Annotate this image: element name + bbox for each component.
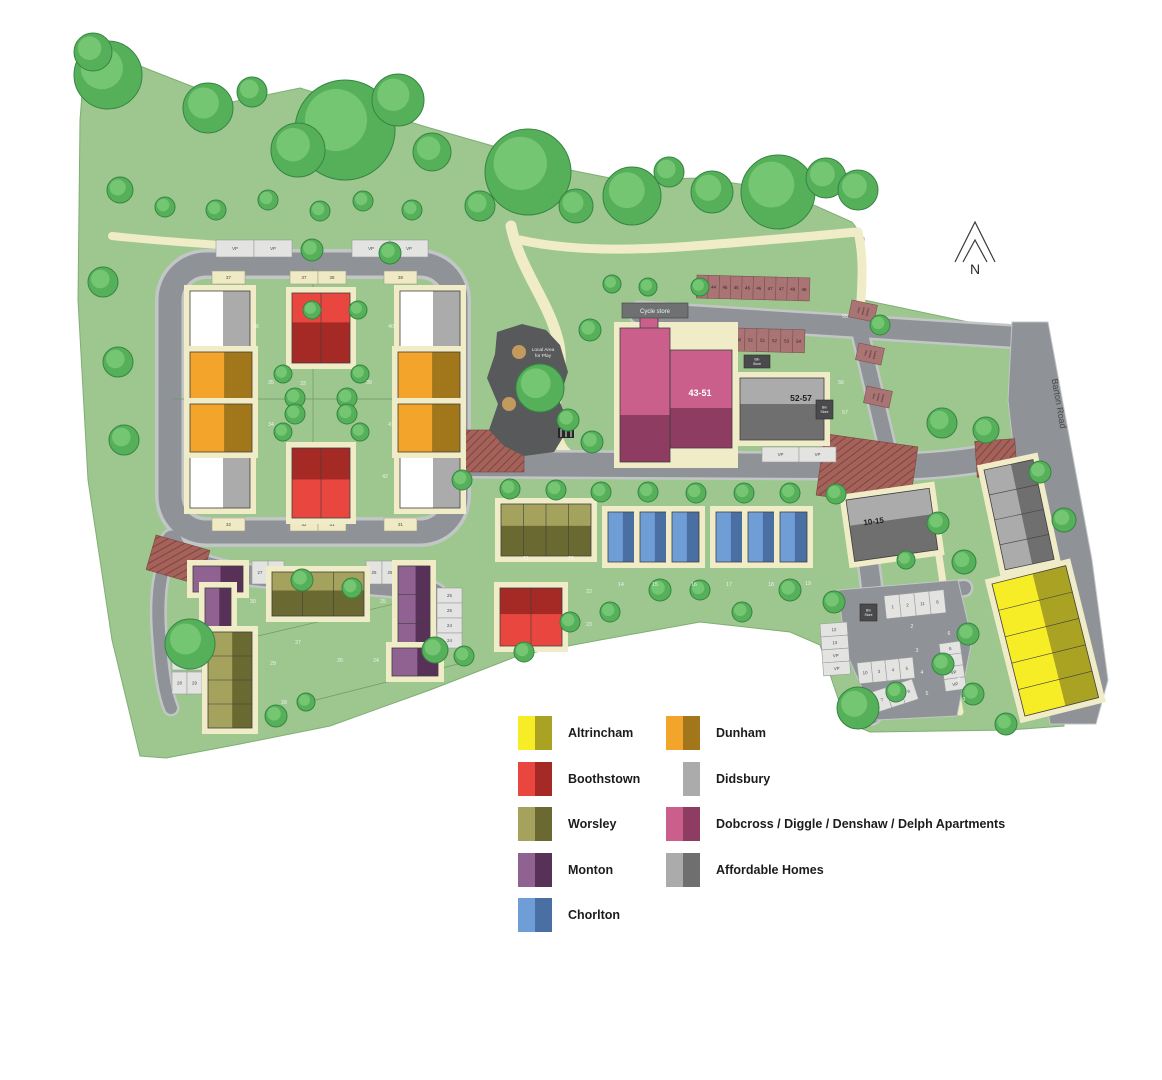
- tree-icon: [258, 190, 278, 210]
- tree-icon: [741, 155, 815, 229]
- tree-icon: [301, 239, 323, 261]
- tree-icon: [691, 171, 733, 213]
- bin-store-label: Bin: [755, 358, 760, 362]
- parking-bay-number: 47: [779, 286, 785, 291]
- tree-icon: [402, 200, 422, 220]
- tree-icon: [514, 642, 534, 662]
- legend-label: Didsbury: [716, 772, 770, 786]
- tree-icon: [559, 189, 593, 223]
- tree-icon: [206, 200, 226, 220]
- tree-icon: [591, 482, 611, 502]
- tree-icon: [886, 682, 906, 702]
- parking-bay-group: 32: [212, 518, 245, 531]
- tree-icon: [88, 267, 118, 297]
- plot-number: 25: [380, 599, 386, 605]
- legend-label: Boothstown: [568, 772, 640, 786]
- parking-bay-number: 25: [447, 593, 452, 598]
- tree-icon: [927, 512, 949, 534]
- parking-bay-number: 46: [745, 285, 751, 290]
- north-label: N: [970, 261, 980, 277]
- legend-item-boothstown: Boothstown: [518, 762, 640, 796]
- building-worsley: [495, 498, 597, 562]
- parking-bay-number: VP: [406, 246, 412, 251]
- north-arrow-inner-chevron: [963, 240, 987, 262]
- tree-icon: [546, 480, 566, 500]
- tree-icon: [351, 423, 369, 441]
- tree-icon: [107, 177, 133, 203]
- parking-bay-number: 24: [447, 638, 452, 643]
- tree-icon: [297, 693, 315, 711]
- parking-bay-number: 45: [734, 285, 740, 290]
- tree-icon: [870, 315, 890, 335]
- tree-icon: [600, 602, 620, 622]
- legend-swatch-dunham: [666, 716, 700, 750]
- tree-icon: [454, 646, 474, 666]
- parking-bay-number: 37: [226, 275, 231, 280]
- building-boothstown: [286, 442, 356, 524]
- plot-number: 55: [842, 314, 848, 320]
- bin-store-label: Store: [820, 410, 828, 414]
- tree-icon: [237, 77, 267, 107]
- plot-number: 26: [337, 658, 343, 664]
- north-arrow: N: [955, 222, 995, 277]
- parking-bay-number: VP: [270, 246, 276, 251]
- tree-icon: [155, 197, 175, 217]
- plot-number: 5: [926, 691, 929, 697]
- legend-label: Altrincham: [568, 726, 633, 740]
- tree-icon: [603, 275, 621, 293]
- parking-bay-number: VP: [815, 452, 821, 457]
- legend-swatch-monton: [518, 853, 552, 887]
- tree-icon: [413, 133, 451, 171]
- plot-number: 27: [295, 640, 301, 646]
- legend-item-didsbury: Didsbury: [666, 762, 770, 796]
- tree-icon: [379, 242, 401, 264]
- legend-swatch-worsley: [518, 807, 552, 841]
- tree-icon: [500, 479, 520, 499]
- tree-icon: [639, 278, 657, 296]
- building-boothstown: [286, 287, 356, 369]
- tree-icon: [183, 83, 233, 133]
- tree-icon: [516, 364, 564, 412]
- legend-swatch-dobcross: [666, 807, 700, 841]
- tree-icon: [560, 612, 580, 632]
- legend: AltrinchamBoothstownWorsleyMontonChorlto…: [518, 716, 1138, 956]
- play-area-label-line1: Local Area: [532, 347, 555, 353]
- building-dunham: [184, 346, 258, 406]
- plot-number: 35: [268, 380, 274, 386]
- parking-bay-number: 12: [831, 627, 837, 632]
- plot-number: 30: [250, 599, 256, 605]
- parking-bay-number: 47: [768, 286, 774, 291]
- cycle-store-label: Cycle store: [640, 309, 671, 315]
- parking-bay-number: 51: [760, 338, 766, 343]
- legend-swatch-altrincham: [518, 716, 552, 750]
- parking-bay-number: 53: [784, 338, 790, 343]
- parking-bay-group: VPVP: [762, 447, 836, 462]
- tree-icon: [274, 365, 292, 383]
- plot-number: 8: [958, 677, 961, 683]
- tree-icon: [337, 404, 357, 424]
- parking-bay-number: 28: [177, 681, 182, 686]
- plot-number: 23: [586, 622, 592, 628]
- building-didsbury: [394, 285, 466, 353]
- tree-icon: [638, 482, 658, 502]
- tree-icon: [957, 623, 979, 645]
- parking-bay-group: 37: [212, 271, 245, 284]
- tree-icon: [779, 579, 801, 601]
- tree-icon: [422, 637, 448, 663]
- plot-number: 4: [921, 670, 924, 676]
- building-dunham: [392, 346, 466, 406]
- tree-icon: [1029, 461, 1051, 483]
- bin-store-label: Store: [864, 613, 872, 617]
- building-chorlton: [666, 506, 705, 568]
- plot-number: 15: [652, 582, 658, 588]
- bin-store-label: Store: [753, 362, 761, 366]
- plot-number: 33: [300, 381, 306, 387]
- legend-swatch-boothstown: [518, 762, 552, 796]
- tree-icon: [780, 483, 800, 503]
- tree-icon: [579, 319, 601, 341]
- plot-number: 9: [963, 697, 966, 703]
- parking-bay-number: 38: [398, 275, 403, 280]
- apartments-43-51-label: 43-51: [688, 388, 711, 398]
- plot-number: 41: [388, 422, 394, 428]
- tree-icon: [734, 483, 754, 503]
- plot-number: 34: [268, 422, 274, 428]
- bin-store-label: Bin: [822, 406, 827, 410]
- parking-bay-number: 48: [801, 287, 807, 292]
- building-dobcross-apartments: [614, 316, 738, 468]
- parking-bay-group: VPVP: [216, 240, 292, 257]
- parking-bay-group: 3738: [290, 271, 346, 284]
- parking-bay-number: 38: [330, 275, 335, 280]
- parking-bay-number: 26: [372, 570, 377, 575]
- legend-label: Dobcross / Diggle / Denshaw / Delph Apar…: [716, 817, 1005, 831]
- tree-icon: [603, 167, 661, 225]
- legend-item-worsley: Worsley: [518, 807, 616, 841]
- tree-icon: [838, 170, 878, 210]
- play-sand-patch: [512, 345, 526, 359]
- tree-icon: [303, 301, 321, 319]
- tree-icon: [927, 408, 957, 438]
- tree-icon: [826, 484, 846, 504]
- plot-number: 21: [523, 556, 529, 562]
- parking-bay-number: VP: [833, 653, 839, 658]
- building-chorlton: [774, 506, 813, 568]
- parking-bay-number: 27: [258, 570, 263, 575]
- building-affordable: [734, 372, 830, 446]
- legend-swatch-affordable: [666, 853, 700, 887]
- tree-icon: [74, 33, 112, 71]
- legend-item-affordable: Affordable Homes: [666, 853, 824, 887]
- parking-bay-number: 37: [302, 275, 307, 280]
- tree-icon: [932, 653, 954, 675]
- tree-icon: [557, 409, 579, 431]
- building-boothstown: [494, 582, 568, 652]
- legend-item-dobcross: Dobcross / Diggle / Denshaw / Delph Apar…: [666, 807, 1005, 841]
- parking-bay-number: VP: [778, 452, 784, 457]
- plot-number: 3: [916, 648, 919, 654]
- plot-number: 42: [382, 474, 388, 480]
- plot-number: 22: [586, 589, 592, 595]
- parking-bay-number: 48: [790, 287, 796, 292]
- tree-icon: [353, 191, 373, 211]
- parking-bay-number: 29: [192, 681, 197, 686]
- tree-icon: [691, 278, 709, 296]
- legend-label: Dunham: [716, 726, 766, 740]
- plot-number: 2: [911, 624, 914, 630]
- parking-bay-number: 13: [832, 640, 838, 645]
- parking-bay-number: 46: [756, 286, 762, 291]
- parking-bay-number: 44: [711, 284, 717, 289]
- parking-bay-number: 52: [772, 338, 778, 343]
- parking-bay-number: 32: [226, 522, 231, 527]
- tree-icon: [310, 201, 330, 221]
- plot-number: 16: [691, 582, 697, 588]
- plot-number: 20: [568, 556, 574, 562]
- legend-swatch-chorlton: [518, 898, 552, 932]
- tree-icon: [1052, 508, 1076, 532]
- plot-number: 28: [281, 700, 287, 706]
- tree-icon: [897, 551, 915, 569]
- tree-icon: [952, 550, 976, 574]
- plot-number: 7: [953, 655, 956, 661]
- plot-number: 14: [618, 582, 624, 588]
- parking-bay-number: 24: [447, 623, 452, 628]
- legend-item-dunham: Dunham: [666, 716, 766, 750]
- tree-icon: [973, 417, 999, 443]
- tree-icon: [291, 569, 313, 591]
- tree-icon: [732, 602, 752, 622]
- tree-icon: [274, 423, 292, 441]
- site-plan-canvas: 43444545464647474848494950505151525354VP…: [0, 0, 1162, 1080]
- bin-store: BinStore: [816, 400, 833, 419]
- tree-icon: [349, 301, 367, 319]
- plot-number: 18: [768, 582, 774, 588]
- parking-bay-number: VP: [368, 246, 374, 251]
- building-didsbury: [184, 285, 256, 353]
- parking-bay-number: 45: [722, 285, 728, 290]
- plot-number: 19: [805, 581, 811, 587]
- plot-number: 29: [270, 661, 276, 667]
- building-dunham: [392, 398, 466, 458]
- play-area-label-line2: for Play: [535, 353, 552, 359]
- legend-item-monton: Monton: [518, 853, 613, 887]
- legend-swatch-didsbury: [666, 762, 700, 796]
- tree-icon: [103, 347, 133, 377]
- parking-bay-number: 54: [796, 339, 802, 344]
- legend-label: Monton: [568, 863, 613, 877]
- tree-icon: [372, 74, 424, 126]
- tree-icon: [686, 483, 706, 503]
- tree-icon: [485, 129, 571, 215]
- legend-item-chorlton: Chorlton: [518, 898, 620, 932]
- plot-number: 36: [253, 324, 259, 330]
- tree-icon: [109, 425, 139, 455]
- tree-icon: [165, 619, 215, 669]
- parking-bay-number: VP: [232, 246, 238, 251]
- plot-number: 56: [838, 380, 844, 386]
- parking-bay-group: 43444545464647474848: [696, 275, 810, 301]
- plot-number: 24: [373, 658, 379, 664]
- tree-icon: [285, 404, 305, 424]
- parking-bay-group: 2829: [172, 672, 202, 694]
- play-sand-patch: [502, 397, 516, 411]
- plot-number: 57: [842, 410, 848, 416]
- parking-bay-number: 25: [447, 608, 452, 613]
- north-arrow-outer-chevron: [955, 222, 995, 262]
- bin-store-label: Bin: [866, 609, 871, 613]
- parking-bay-group: 1213VPVP: [820, 622, 851, 676]
- tree-icon: [452, 470, 472, 490]
- legend-item-altrincham: Altrincham: [518, 716, 633, 750]
- tree-icon: [342, 578, 362, 598]
- building-dunham: [184, 398, 258, 458]
- tree-icon: [271, 123, 325, 177]
- tree-icon: [265, 705, 287, 727]
- legend-label: Worsley: [568, 817, 616, 831]
- legend-label: Chorlton: [568, 908, 620, 922]
- bin-store: BinStore: [860, 604, 877, 621]
- tree-icon: [654, 157, 684, 187]
- parking-bay-number: 31: [398, 522, 403, 527]
- tree-icon: [823, 591, 845, 613]
- tree-icon: [465, 191, 495, 221]
- plot-number: 17: [726, 582, 732, 588]
- parking-bay-number: VP: [834, 666, 840, 671]
- bin-store: BinStore: [744, 355, 770, 368]
- plot-number: 39: [366, 380, 372, 386]
- parking-bay-group: 38: [384, 271, 417, 284]
- parking-bay-group: 31: [384, 518, 417, 531]
- legend-label: Affordable Homes: [716, 863, 824, 877]
- plot-number: 6: [948, 631, 951, 637]
- parking-bay-number: 51: [748, 337, 754, 342]
- plot-number: 40: [388, 324, 394, 330]
- tree-icon: [581, 431, 603, 453]
- block-52-57-label: 52-57: [790, 393, 812, 403]
